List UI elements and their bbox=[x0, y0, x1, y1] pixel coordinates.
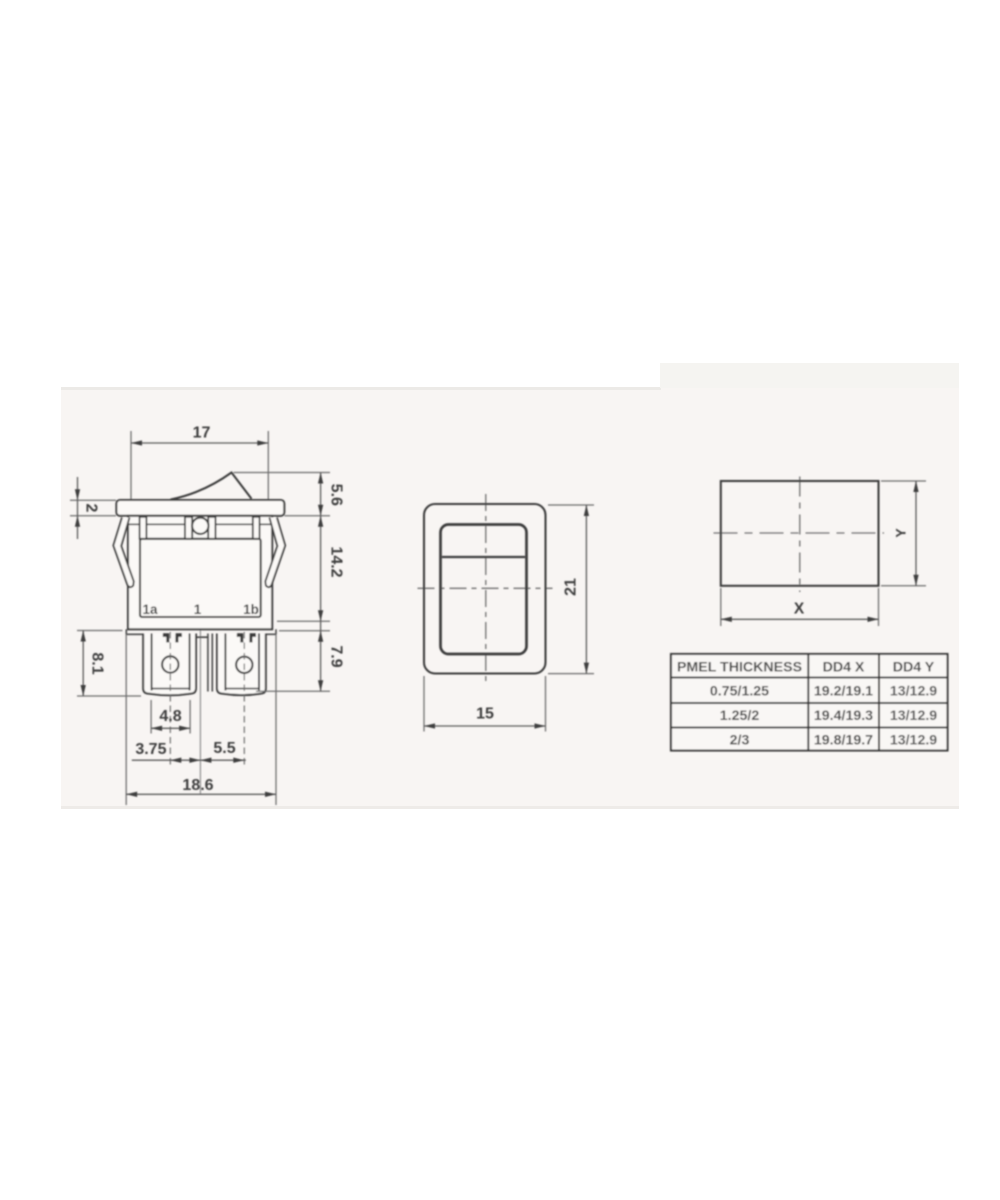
svg-text:1a: 1a bbox=[142, 602, 158, 617]
svg-text:3.75: 3.75 bbox=[135, 741, 166, 758]
svg-text:17: 17 bbox=[193, 425, 211, 442]
svg-text:19.2/19.1: 19.2/19.1 bbox=[814, 684, 873, 700]
svg-text:18.6: 18.6 bbox=[182, 777, 213, 794]
svg-text:21: 21 bbox=[563, 578, 580, 596]
svg-text:8.1: 8.1 bbox=[89, 652, 106, 674]
svg-text:2: 2 bbox=[83, 504, 100, 513]
svg-text:19.8/19.7: 19.8/19.7 bbox=[814, 733, 873, 749]
svg-text:DD4 Y: DD4 Y bbox=[893, 659, 935, 675]
svg-text:13/12.9: 13/12.9 bbox=[890, 684, 937, 700]
svg-text:1: 1 bbox=[194, 602, 202, 617]
svg-text:1.25/2: 1.25/2 bbox=[720, 708, 760, 724]
svg-text:13/12.9: 13/12.9 bbox=[890, 708, 937, 724]
svg-text:2/3: 2/3 bbox=[730, 733, 750, 749]
svg-text:PMEL THICKNESS: PMEL THICKNESS bbox=[677, 659, 802, 675]
svg-text:5.5: 5.5 bbox=[213, 740, 235, 757]
svg-text:13/12.9: 13/12.9 bbox=[890, 733, 937, 749]
svg-text:DD4 X: DD4 X bbox=[823, 659, 865, 675]
svg-text:7.9: 7.9 bbox=[327, 645, 344, 667]
svg-text:19.4/19.3: 19.4/19.3 bbox=[814, 708, 873, 724]
svg-text:0.75/1.25: 0.75/1.25 bbox=[710, 684, 769, 700]
svg-text:X: X bbox=[794, 601, 805, 618]
svg-text:15: 15 bbox=[476, 706, 494, 723]
svg-text:Y: Y bbox=[893, 528, 909, 538]
svg-text:1b: 1b bbox=[243, 602, 259, 617]
svg-text:5.6: 5.6 bbox=[327, 484, 344, 506]
svg-text:14.2: 14.2 bbox=[328, 546, 345, 577]
svg-text:4.8: 4.8 bbox=[159, 708, 181, 725]
